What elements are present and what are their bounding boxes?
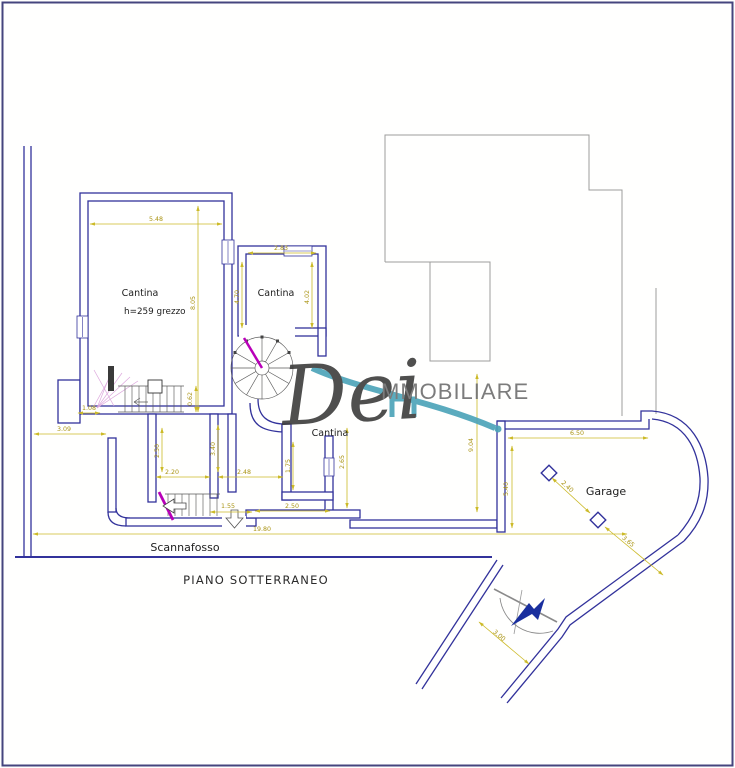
dim-garage-diag-b: 3.65 — [620, 535, 635, 549]
dim-mid-right: 4.02 — [304, 290, 311, 304]
dim-room-b-depth: 1.75 — [285, 459, 292, 473]
floorplan-drawing: Dei MMOBILIARE 5.48 8.05 2.83 4.70 4.02 … — [0, 0, 735, 768]
upper-floor-reference-outline — [385, 135, 656, 416]
dim-room-a-width: 2.20 — [165, 469, 179, 476]
dim-garage-width: 6.50 — [570, 430, 584, 437]
dim-nw-depth: 8.05 — [190, 296, 197, 310]
garage-curved-wall-inner — [652, 419, 700, 535]
dim-stair-b: 0.62 — [187, 392, 194, 406]
dim-stair-a: 1.08 — [82, 405, 96, 412]
dim-stair-room-depth: 2.50 — [154, 444, 161, 458]
stair-newel-post — [108, 366, 114, 391]
label-cantina-nw-note: h=259 grezzo — [124, 307, 186, 317]
entry-direction-arrow — [511, 598, 545, 626]
gate-post-line — [514, 590, 522, 634]
dim-nw-width: 5.48 — [149, 216, 163, 223]
cantina-south-bottom-wall — [282, 492, 333, 500]
label-cantina-mid: Cantina — [258, 288, 295, 299]
dim-hall-depth: 3.40 — [210, 442, 217, 456]
garage-pillar-1 — [541, 465, 557, 481]
garage-left-wall — [497, 421, 505, 532]
garage-pillar-2 — [590, 512, 606, 528]
label-cantina-south: Cantina — [312, 428, 349, 439]
floorplan-page: Dei MMOBILIARE 5.48 8.05 2.83 4.70 4.02 … — [0, 0, 735, 768]
dim-west-gap: 3.09 — [57, 426, 71, 433]
dim-court-depth: 9.04 — [468, 438, 475, 452]
dim-mid-width: 2.83 — [274, 245, 288, 252]
dim-stair-width: 1.55 — [221, 503, 235, 510]
lower-left-corner-outer — [108, 512, 126, 526]
lower-left-outer-wall — [108, 438, 116, 512]
dim-room-c-depth: 2.65 — [339, 455, 346, 469]
west-stub-wall — [58, 380, 80, 423]
watermark-caps-text: MMOBILIARE — [381, 379, 529, 404]
dim-overall-width: 19.80 — [253, 526, 271, 533]
dim-garage-depth: 5.40 — [503, 482, 510, 496]
ramp-nw-wall-inner — [422, 565, 503, 689]
spiral-funnel-wall-inner — [250, 403, 283, 432]
dim-mid-left: 4.70 — [234, 290, 241, 304]
label-scannafosso: Scannafosso — [150, 541, 220, 554]
interior-wall-c — [228, 414, 236, 492]
watermark-swoosh-dot — [495, 426, 502, 433]
label-cantina-nw: Cantina — [122, 288, 159, 299]
ramp-se-wall-outer — [507, 541, 684, 703]
garage-top-wall-outer — [497, 411, 652, 421]
stair-left-arrow — [163, 499, 186, 513]
lower-left-corner-inner — [116, 508, 130, 518]
label-garage: Garage — [586, 485, 627, 498]
dim-room-c-width: 2.50 — [285, 503, 299, 510]
spiral-opening — [239, 325, 295, 338]
ramp-nw-wall-outer — [416, 560, 497, 684]
dim-ramp-width: 3.00 — [491, 629, 506, 643]
spiral-stair-accent-line — [244, 338, 262, 368]
south-wall-band-c — [350, 520, 497, 528]
page-title: PIANO SOTTERRANEO — [183, 573, 329, 587]
stair-box-symbol — [148, 380, 162, 393]
dim-room-b-width: 2.48 — [237, 469, 251, 476]
